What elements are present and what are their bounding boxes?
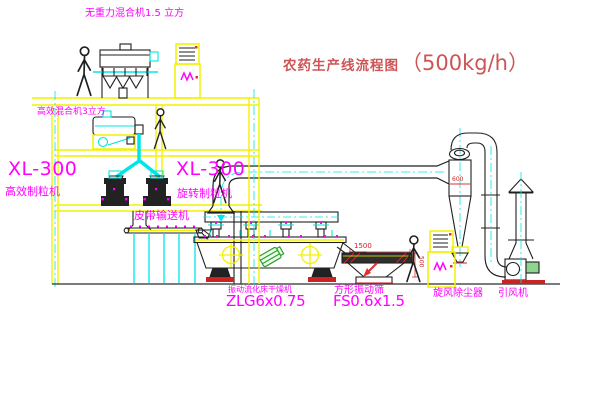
cyclone-drawing: [449, 128, 500, 267]
diagram-title: 农药生产线流程图 （500kg/h）: [283, 47, 529, 77]
control-cabinet-top: [175, 44, 200, 98]
label-granulator-left-name: 高效制粒机: [5, 186, 60, 198]
fluid-bed-dryer-drawing: [194, 212, 366, 282]
dim-screen-side: 500: [417, 256, 423, 267]
label-gravity-mixer: 无重力混合机1.5 立方: [85, 9, 184, 20]
vibrating-screen-drawing: [342, 249, 418, 283]
dim-screen-length: 1500: [354, 243, 372, 250]
title-capacity: （500kg/h）: [401, 47, 529, 77]
gravity-mixer-drawing: [93, 44, 158, 98]
label-granulator-right-name: 旋转制粒机: [177, 188, 232, 200]
label-granulator-right-model: XL-300: [176, 160, 245, 180]
label-granulator-left-model: XL-300: [8, 160, 77, 180]
main-column: [249, 89, 259, 291]
worker-top-floor: [77, 47, 91, 95]
label-dryer-model: ZLG6x0.75: [226, 294, 305, 310]
label-high-eff-mixer: 高效混合机3立方: [37, 108, 106, 117]
label-cyclone: 旋风除尘器: [433, 289, 483, 300]
title-text: 农药生产线流程图: [283, 54, 399, 74]
label-belt-conveyor: 皮带输送机: [134, 210, 189, 222]
label-screen-model: FS0.6x1.5: [333, 294, 405, 310]
dim-cyclone-outlet: 600: [452, 177, 463, 183]
control-cabinet-right: [428, 231, 455, 287]
cad-flow-diagram: 农药生产线流程图 （500kg/h） 无重力混合机1.5 立方 高效混合机3立方…: [0, 0, 600, 403]
label-fan: 引风机: [498, 289, 528, 300]
